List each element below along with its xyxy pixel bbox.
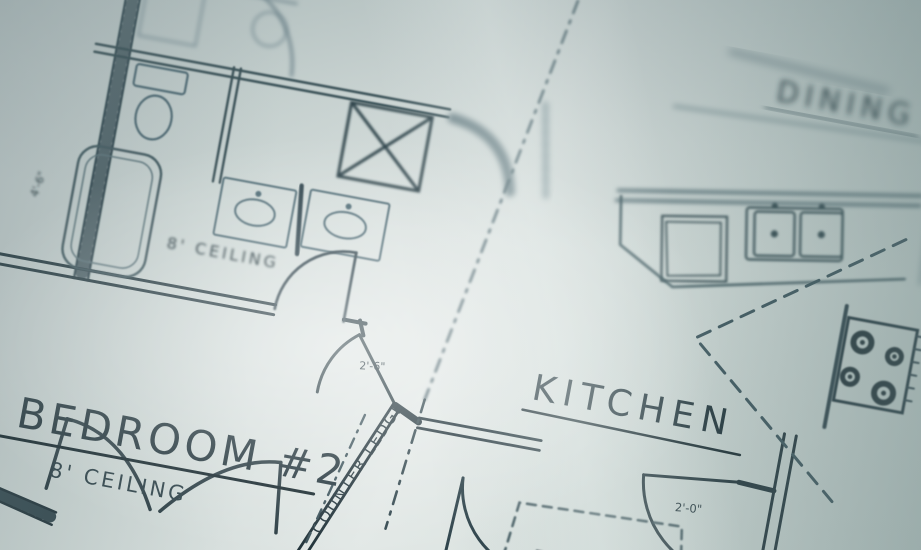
left-wall-dimension: 4'-6" (28, 170, 49, 199)
vanity-sink-1 (213, 177, 296, 248)
double-sink (746, 203, 843, 261)
left-exterior-wall (74, 0, 140, 280)
blueprint-photo: BEDROOM #2 8' CEILING 8' CEILING KITCHEN… (0, 0, 921, 550)
toilet (124, 64, 188, 144)
stove (824, 306, 921, 442)
bathtub (59, 143, 164, 280)
illegible-vertical-label (529, 105, 562, 197)
kitchen-dashed-triangle (671, 205, 906, 506)
corner-wall-stub (0, 480, 59, 525)
hall-door (444, 477, 547, 550)
desk-label: DESK (531, 545, 600, 550)
counter-front-edge (607, 196, 911, 328)
labels: BEDROOM #2 8' CEILING 8' CEILING KITCHEN… (0, 0, 921, 550)
stove-burners (839, 331, 904, 404)
bathroom-door (275, 240, 357, 322)
bedroom2-ceiling-label: 8' CEILING (48, 458, 190, 507)
hall-dash-upper (425, 0, 578, 414)
bathroom-ceiling-label: 8' CEILING (165, 233, 280, 272)
desk-nook-wall (752, 434, 796, 550)
shower-x-box (338, 102, 432, 191)
bathroom-walls (75, 42, 450, 222)
bedroom-door-dimension: 2'-6" (359, 359, 386, 373)
kitchen-door-dimension: 2'-0" (674, 500, 702, 516)
